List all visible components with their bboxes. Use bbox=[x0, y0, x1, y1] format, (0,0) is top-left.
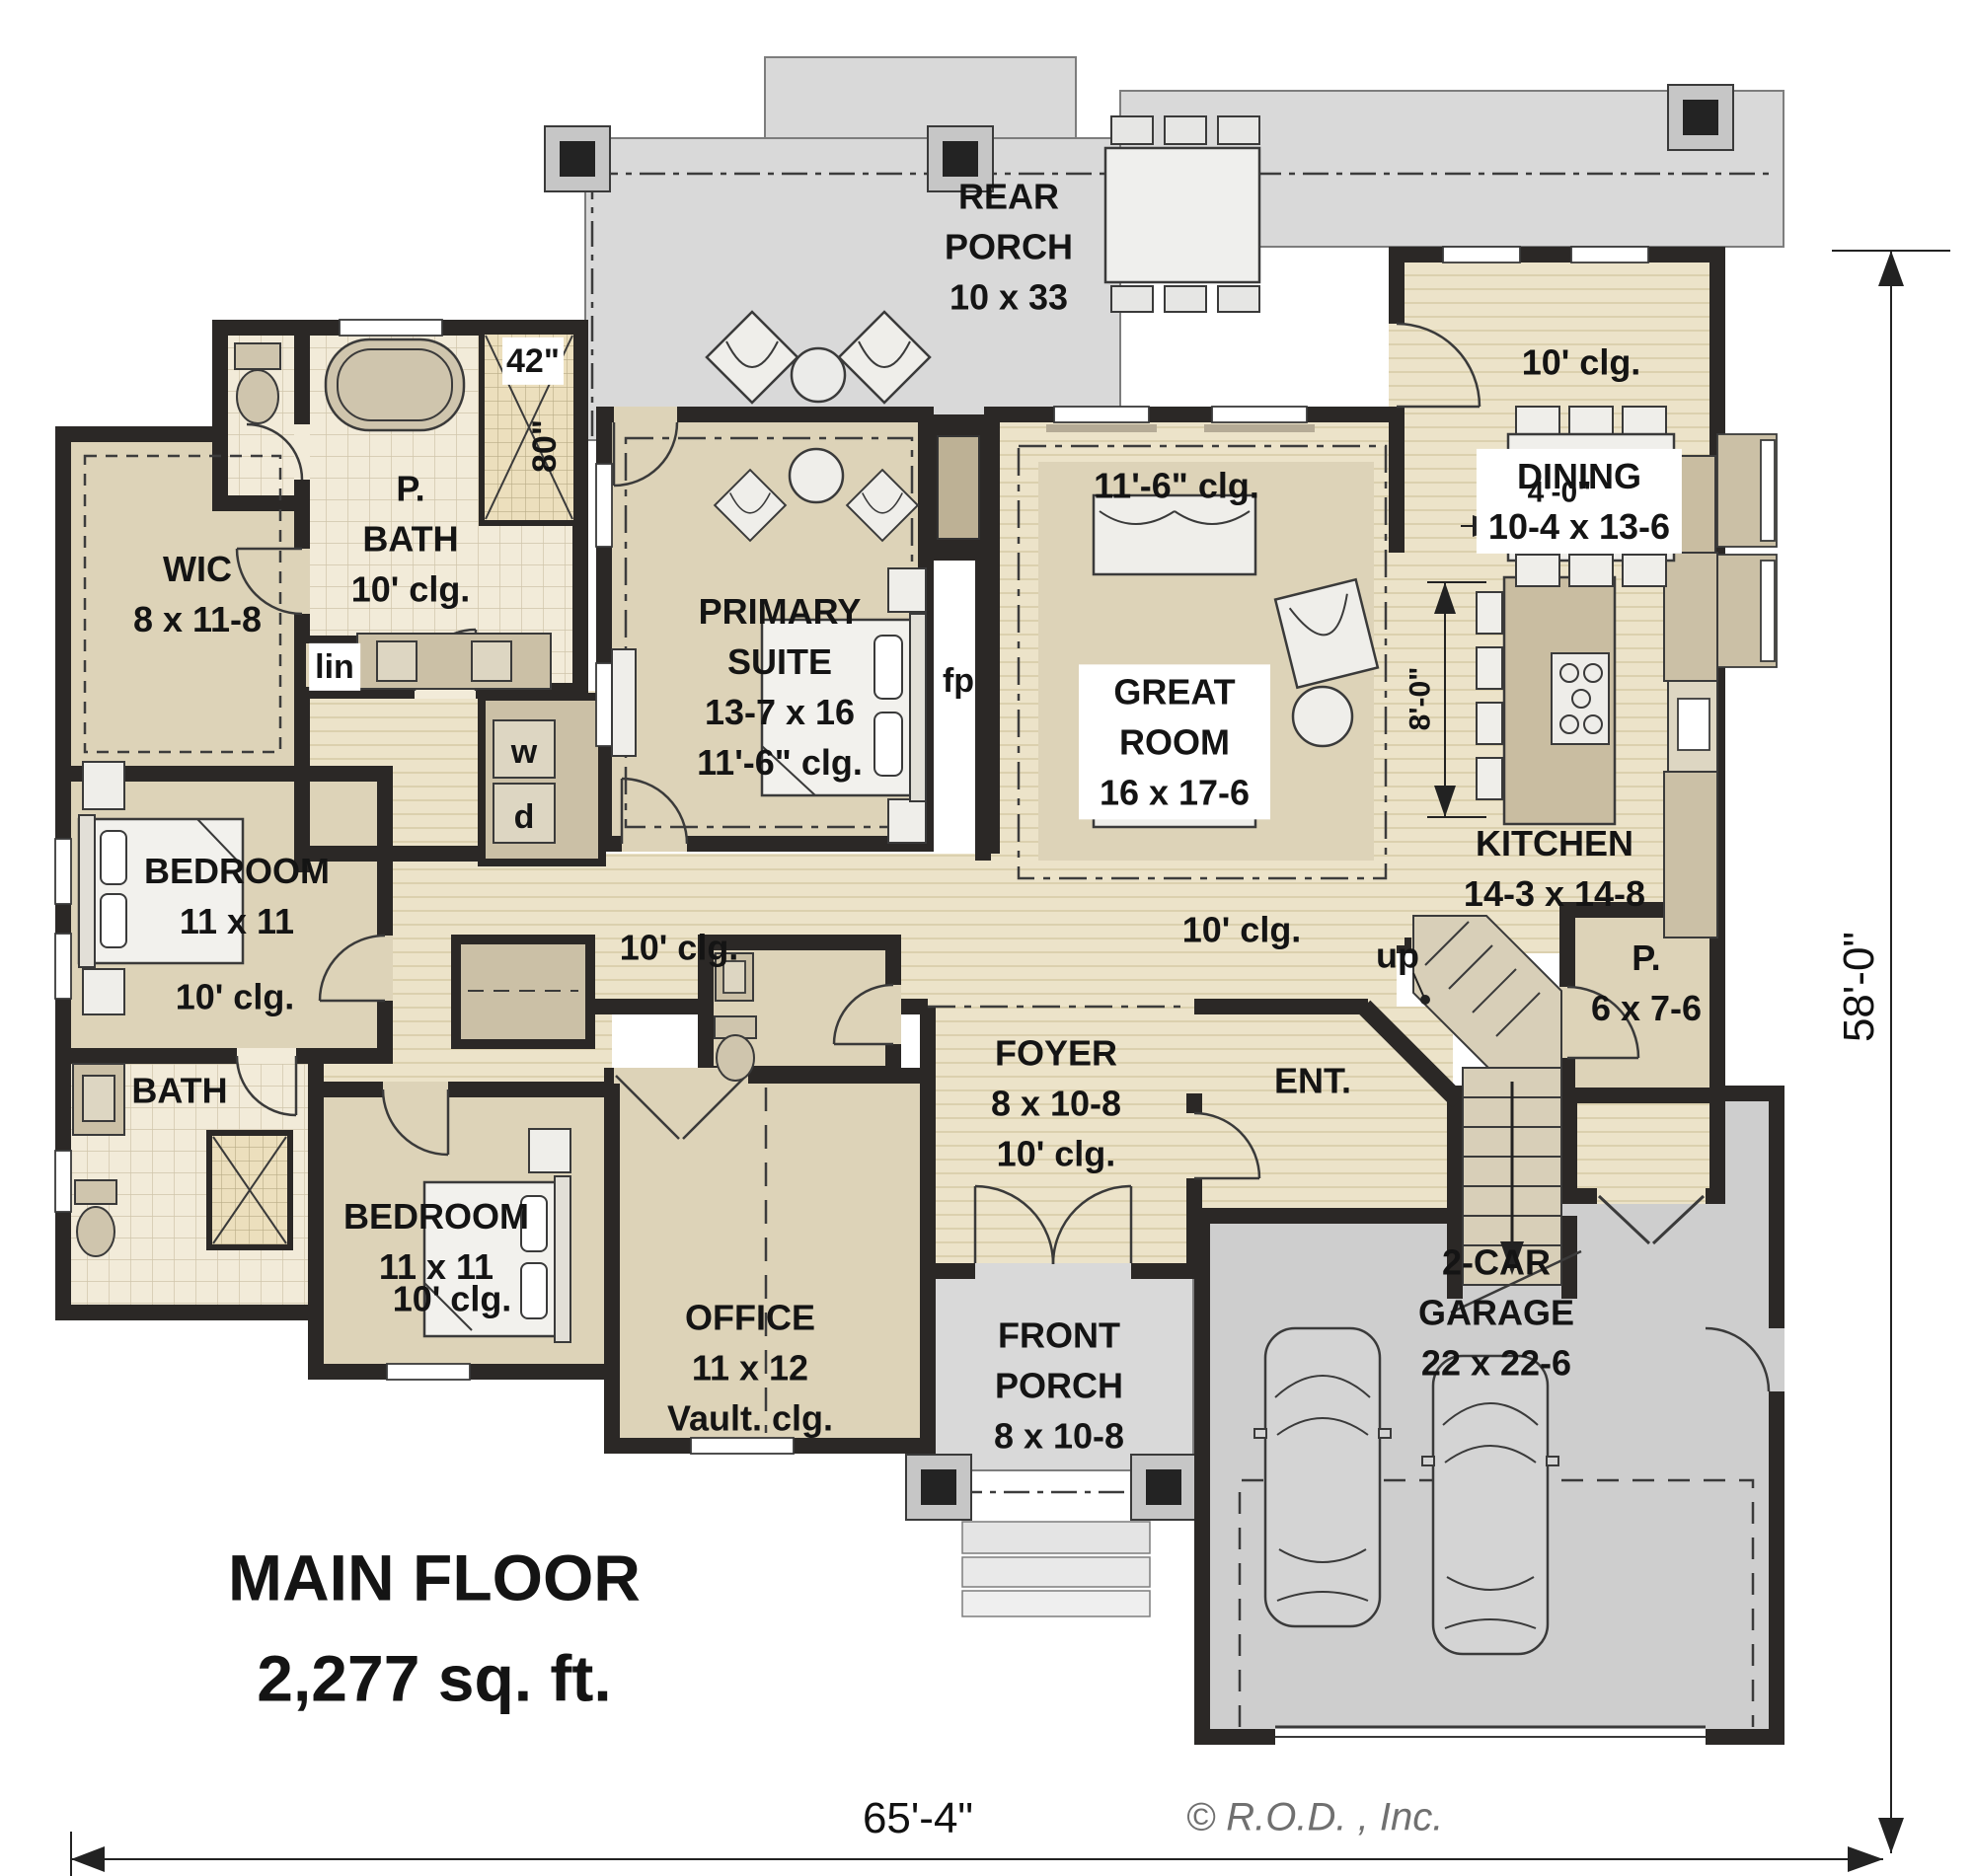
car bbox=[1254, 1328, 1391, 1626]
great-room-ceiling: 11'-6" clg. bbox=[1094, 460, 1259, 510]
garage-label: 2-CAR GARAGE 22 x 22-6 bbox=[1418, 1237, 1574, 1388]
ent-label: ENT. bbox=[1274, 1055, 1351, 1105]
dining-ceiling: 10' clg. bbox=[1522, 337, 1641, 387]
porch-post bbox=[545, 126, 610, 191]
wic-dims: 8 x 11-8 bbox=[133, 594, 262, 644]
rear-porch-dims: 10 x 33 bbox=[915, 272, 1102, 323]
garage-name-1: 2-CAR bbox=[1418, 1237, 1574, 1287]
primary-name-2: SUITE bbox=[697, 637, 863, 687]
kitchen-island-width-dim: 4'-0" bbox=[1528, 473, 1592, 515]
front-porch-label: FRONT PORCH 8 x 10-8 bbox=[994, 1310, 1124, 1461]
primary-suite-label: PRIMARY SUITE 13-7 x 16 11'-6" clg. bbox=[697, 586, 863, 788]
rear-porch-name: REAR PORCH bbox=[915, 171, 1102, 271]
sink bbox=[1678, 699, 1709, 750]
hall-left-ceiling: 10' clg. bbox=[620, 922, 739, 972]
primary-ceiling: 11'-6" clg. bbox=[697, 737, 863, 788]
linen-label: lin bbox=[309, 643, 360, 691]
plan-title: MAIN FLOOR 2,277 sq. ft. bbox=[228, 1528, 641, 1730]
kitchen-island-depth-dim: 8'-0" bbox=[1401, 667, 1443, 731]
side-table bbox=[1293, 687, 1352, 746]
tub bbox=[326, 339, 464, 430]
bedroom-left-label: BEDROOM 11 x 11 bbox=[144, 846, 330, 946]
dresser bbox=[612, 649, 636, 756]
laundry-closet bbox=[482, 697, 602, 863]
toilet bbox=[235, 343, 280, 423]
bedroom-lower-ceiling: 10' clg. bbox=[393, 1273, 512, 1323]
plan-title-text: MAIN FLOOR bbox=[228, 1528, 641, 1628]
bedroom-lower-name: BEDROOM bbox=[343, 1191, 529, 1241]
bath-left-label: BATH bbox=[131, 1065, 227, 1115]
kitchen-label: KITCHEN 14-3 x 14-8 bbox=[1464, 818, 1645, 919]
fireplace-label: fp bbox=[943, 657, 974, 705]
stairs-up-label: up bbox=[1376, 930, 1419, 980]
foyer-label: FOYER 8 x 10-8 10' clg. bbox=[991, 1027, 1121, 1178]
ent-floor bbox=[1194, 1007, 1453, 1216]
pantry-name: P. bbox=[1591, 933, 1702, 983]
washer-label: w bbox=[511, 728, 537, 776]
shower-depth-dim: 80" bbox=[521, 419, 569, 473]
great-room-dims: 16 x 17-6 bbox=[1091, 768, 1258, 818]
front-porch-name-2: PORCH bbox=[994, 1360, 1124, 1410]
plan-height-dim: 58'-0" bbox=[1829, 932, 1890, 1042]
primary-name-1: PRIMARY bbox=[697, 586, 863, 637]
garage-dims: 22 x 22-6 bbox=[1418, 1338, 1574, 1388]
toilet bbox=[75, 1180, 116, 1256]
hall-closet bbox=[456, 939, 590, 1044]
foyer-dims: 8 x 10-8 bbox=[991, 1078, 1121, 1128]
vanity bbox=[357, 634, 551, 689]
office-dims: 11 x 12 bbox=[667, 1342, 833, 1392]
primary-bath-name-1: P. bbox=[351, 463, 471, 513]
primary-bath-ceiling: 10' clg. bbox=[351, 564, 471, 615]
floor-plan-page: REAR PORCH 10 x 33 10' clg. DINING 10-4 … bbox=[0, 0, 1974, 1876]
primary-bath-name-2: BATH bbox=[351, 513, 471, 563]
hall-right-ceiling: 10' clg. bbox=[1182, 904, 1302, 954]
plan-area-text: 2,277 sq. ft. bbox=[228, 1628, 641, 1729]
foyer-ceiling: 10' clg. bbox=[991, 1129, 1121, 1179]
plan-width-dim: 65'-4" bbox=[863, 1788, 973, 1849]
rear-porch-label: REAR PORCH 10 x 33 bbox=[915, 171, 1102, 322]
wic-label: WIC 8 x 11-8 bbox=[133, 544, 262, 644]
great-room-name: GREAT ROOM bbox=[1091, 666, 1258, 767]
porch-side-table bbox=[792, 348, 845, 402]
porch-post bbox=[1131, 1455, 1196, 1520]
pantry-dims: 6 x 7-6 bbox=[1591, 983, 1702, 1033]
great-room-label: GREAT ROOM 16 x 17-6 bbox=[1079, 664, 1270, 819]
mud-hall-floor bbox=[1567, 1093, 1717, 1196]
porch-post bbox=[1668, 85, 1733, 150]
office-name: OFFICE bbox=[667, 1292, 833, 1342]
car bbox=[1422, 1356, 1558, 1654]
bedroom-left-dims: 11 x 11 bbox=[144, 896, 330, 946]
shower-width-dim: 42" bbox=[502, 338, 564, 385]
front-porch-dims: 8 x 10-8 bbox=[994, 1411, 1124, 1462]
primary-bath-label: P. BATH 10' clg. bbox=[351, 463, 471, 614]
office-ceiling: Vault. clg. bbox=[667, 1393, 833, 1444]
nightstand bbox=[888, 568, 926, 612]
bedroom-left-name: BEDROOM bbox=[144, 846, 330, 896]
shower bbox=[209, 1133, 290, 1247]
primary-dims: 13-7 x 16 bbox=[697, 687, 863, 737]
foyer-name: FOYER bbox=[991, 1027, 1121, 1078]
front-porch-name-1: FRONT bbox=[994, 1310, 1124, 1360]
wic-name: WIC bbox=[133, 544, 262, 594]
kitchen-name: KITCHEN bbox=[1464, 818, 1645, 868]
pantry-label: P. 6 x 7-6 bbox=[1591, 933, 1702, 1033]
kitchen-dims: 14-3 x 14-8 bbox=[1464, 868, 1645, 919]
bedroom-left-ceiling: 10' clg. bbox=[176, 971, 295, 1021]
fireplace bbox=[926, 414, 991, 861]
office-label: OFFICE 11 x 12 Vault. clg. bbox=[667, 1292, 833, 1443]
dryer-label: d bbox=[514, 793, 535, 841]
nightstand bbox=[888, 799, 926, 843]
garage-name-2: GARAGE bbox=[1418, 1287, 1574, 1337]
copyright-text: © R.O.D. , Inc. bbox=[1186, 1790, 1444, 1846]
porch-post bbox=[906, 1455, 971, 1520]
